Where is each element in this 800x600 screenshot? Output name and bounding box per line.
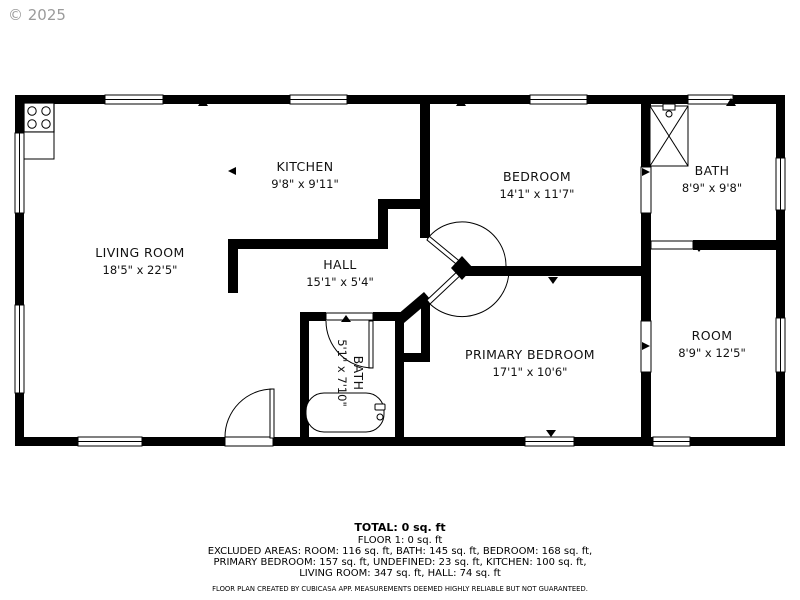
room-name: HALL <box>323 257 356 272</box>
wall-segment <box>228 239 388 249</box>
room-name: BEDROOM <box>503 169 571 184</box>
floor-area-text: FLOOR 1: 0 sq. ft <box>358 535 443 546</box>
wall-segment <box>395 353 430 362</box>
entry-door <box>225 389 274 446</box>
room-dims: 8'9" x 12'5" <box>678 346 746 360</box>
window <box>15 133 24 213</box>
room-name: PRIMARY BEDROOM <box>465 347 595 362</box>
shower-icon <box>650 104 688 166</box>
copyright-watermark: © 2025 <box>8 6 66 24</box>
window <box>776 158 785 210</box>
room-label-hall: HALL 15'1" x 5'4" <box>306 257 374 289</box>
measure-arrow-icon <box>228 167 236 175</box>
room-name: ROOM <box>692 328 733 343</box>
wall-segment <box>420 104 430 238</box>
disclaimer-text: FLOOR PLAN CREATED BY CUBICASA APP. MEAS… <box>212 585 588 593</box>
window <box>290 95 347 104</box>
window <box>688 95 733 104</box>
stove-icon <box>24 103 54 132</box>
wall-segment <box>641 212 651 275</box>
room-name: LIVING ROOM <box>95 245 184 260</box>
room-label-living-room: LIVING ROOM 18'5" x 22'5" <box>95 245 184 277</box>
room-label-bath: BATH 8'9" x 9'8" <box>682 163 742 195</box>
wall-segment <box>641 371 651 441</box>
wall-segment <box>462 266 651 276</box>
room-name: BATH <box>695 163 730 178</box>
wall-segment <box>300 312 326 321</box>
room-label-room: ROOM 8'9" x 12'5" <box>678 328 746 360</box>
room-label-kitchen: KITCHEN 9'8" x 9'11" <box>271 159 339 191</box>
room-dims: 18'5" x 22'5" <box>103 263 178 277</box>
excluded-areas-line-3: LIVING ROOM: 347 sq. ft, HALL: 74 sq. ft <box>299 568 501 579</box>
wall-segment <box>228 239 238 293</box>
wall-segment <box>641 275 651 322</box>
room-dims: 9'8" x 9'11" <box>271 177 339 191</box>
kitchen-counter <box>24 132 54 159</box>
room-dims: 15'1" x 5'4" <box>306 275 374 289</box>
room-label-primary-bedroom: PRIMARY BEDROOM 17'1" x 10'6" <box>465 347 595 379</box>
wall-segment <box>776 95 785 446</box>
excluded-areas-line-2: PRIMARY BEDROOM: 157 sq. ft, UNDEFINED: … <box>213 557 586 568</box>
area-summary: TOTAL: 0 sq. ft FLOOR 1: 0 sq. ft EXCLUD… <box>208 521 593 593</box>
room-name: KITCHEN <box>277 159 334 174</box>
room-dims: 17'1" x 10'6" <box>493 365 568 379</box>
measure-arrow-icon <box>548 277 558 284</box>
room-dims: 14'1" x 11'7" <box>500 187 575 201</box>
window <box>525 437 574 446</box>
room-dims: 8'9" x 9'8" <box>682 181 742 195</box>
floor-plan-canvas: © 2025 <box>0 0 800 600</box>
doorway-opening <box>651 241 693 249</box>
room-label-bedroom: BEDROOM 14'1" x 11'7" <box>500 169 575 201</box>
window <box>78 437 142 446</box>
room-name: BATH <box>351 356 366 391</box>
window <box>105 95 163 104</box>
measure-arrow-icon <box>546 430 556 437</box>
window <box>776 318 785 372</box>
window <box>653 437 690 446</box>
excluded-areas-line-1: EXCLUDED AREAS: ROOM: 116 sq. ft, BATH: … <box>208 546 593 557</box>
window <box>530 95 587 104</box>
total-area-text: TOTAL: 0 sq. ft <box>354 521 445 534</box>
window <box>15 305 24 393</box>
floor-plan-page: © 2025 <box>0 0 800 600</box>
wall-segment <box>421 298 430 362</box>
wall-segment <box>693 240 776 250</box>
wall-segment <box>395 312 404 437</box>
room-dims: 5'1" x 7'10" <box>335 339 349 407</box>
